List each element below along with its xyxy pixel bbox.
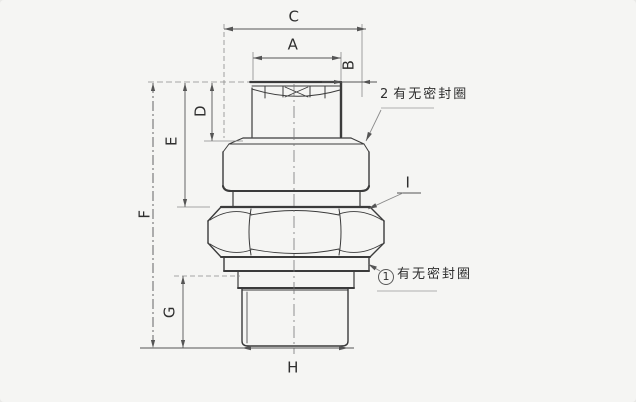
dim-e: [177, 83, 210, 207]
dim-label-a: A: [288, 38, 299, 53]
release-collar: [250, 82, 341, 137]
leader-seal-ring-top: [366, 108, 434, 141]
dim-label-d: D: [194, 105, 209, 117]
body-cap: [223, 138, 369, 191]
dim-label-c: C: [289, 10, 300, 25]
thread-stud: [242, 288, 348, 346]
hex-nut: [208, 207, 384, 257]
annotation-bottom-text: 有无密封圈: [397, 267, 472, 282]
seal-ring-band: [238, 271, 354, 288]
dim-a: [253, 52, 341, 80]
dim-label-h: H: [287, 361, 299, 376]
annotation-top-number: 2: [380, 87, 388, 102]
dim-b: [322, 80, 377, 84]
drawing-canvas: C A B D E F G H I 2有无密封圈 1有无密封圈: [0, 0, 636, 402]
leader-dim-i: [368, 193, 421, 209]
dim-d: [204, 83, 243, 141]
neck: [233, 191, 360, 207]
dim-label-i: I: [406, 176, 411, 191]
washer: [224, 257, 369, 271]
dim-label-g: G: [163, 306, 178, 318]
dim-label-f: F: [138, 209, 153, 218]
annotation-top-text: 有无密封圈: [393, 87, 468, 102]
dim-label-e: E: [165, 136, 180, 146]
annotation-seal-ring-bottom: 1有无密封圈: [378, 268, 472, 285]
fitting-line-drawing: [0, 0, 636, 402]
annotation-seal-ring-top: 2有无密封圈: [380, 88, 468, 101]
dim-label-b: B: [342, 60, 357, 71]
annotation-bottom-number: 1: [378, 269, 394, 285]
dim-g: [174, 276, 240, 348]
